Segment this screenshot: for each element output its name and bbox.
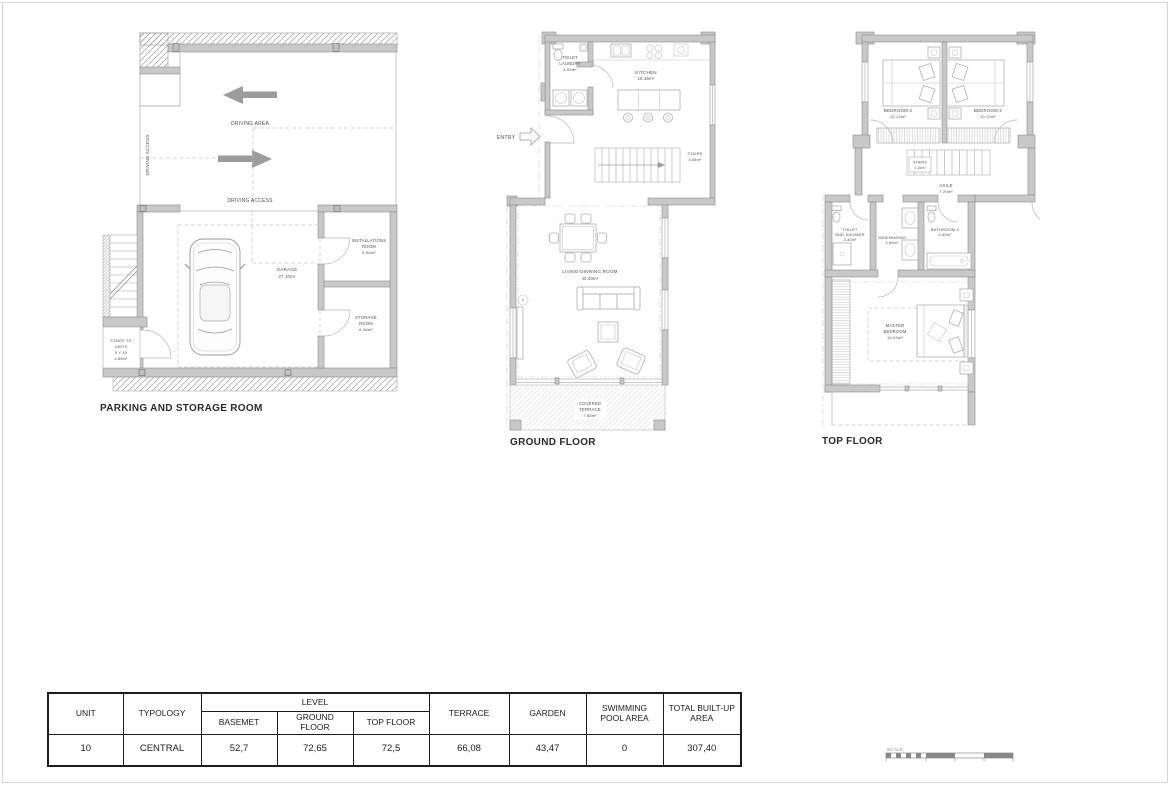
kitchen-island xyxy=(618,90,680,122)
covered-terrace: COVERED TERRACE 7.58m² xyxy=(510,385,665,430)
entry-label: ENTRY xyxy=(497,135,516,141)
stairs-units-area: 4.88m² xyxy=(114,357,128,361)
top-stairs-area: 1.10m² xyxy=(914,166,926,170)
th-unit: UNIT xyxy=(48,693,123,734)
living-room-area: 40.30m² xyxy=(582,276,599,281)
table-row: 10 CENTRAL 52,7 72,65 72,5 66,08 43,47 0… xyxy=(48,734,741,766)
cell-garden: 43,47 xyxy=(509,734,586,766)
entry-arrow-icon xyxy=(520,128,540,145)
cell-basement: 52,7 xyxy=(201,734,277,766)
bedroom3-name: BEDROOM 3 xyxy=(884,108,913,113)
living-window-left xyxy=(510,308,516,358)
cell-unit: 10 xyxy=(48,734,123,766)
storage-area: 6.08m² xyxy=(359,327,373,332)
storage-room-label: STORAGE ROOM 6.08m² xyxy=(355,315,377,332)
driving-access-bottom-label: DRIVING ACCESS xyxy=(227,198,273,204)
bedroom3-bed xyxy=(883,60,940,106)
sofa xyxy=(577,287,640,310)
toilet-laundry-room: TOILET LAUNDRY 3.05m² xyxy=(545,42,613,115)
th-basement: BASEMET xyxy=(201,712,277,735)
stairs-units-label-1: STAIRS TO xyxy=(110,339,131,343)
toilet-shower-room: TOILET AND SHOWER 3.30m² xyxy=(832,206,865,265)
cell-typology: CENTRAL xyxy=(123,734,201,766)
master-terrace-outline xyxy=(832,392,975,425)
th-level: LEVEL xyxy=(201,693,429,712)
installations-room-door xyxy=(324,238,350,264)
kitchen-area: 16.19m² xyxy=(638,76,655,81)
living-room-name: LIVING-DINNING ROOM xyxy=(562,269,617,274)
scale-label: SCALE xyxy=(887,747,903,752)
master-area: 19.03m² xyxy=(887,335,904,340)
installations-area: 5.96m² xyxy=(362,250,376,255)
console-table xyxy=(517,307,523,359)
th-swimming-pool: SWIMMING POOL AREA xyxy=(586,693,663,734)
cell-swimming-pool: 0 xyxy=(586,734,663,766)
toilet-shower-line2: AND SHOWER xyxy=(835,232,865,237)
top-stairs: STAIRS 1.10m² xyxy=(907,150,990,175)
master-bed xyxy=(917,305,968,357)
ground-stairs: STAIRS 3.84m² xyxy=(595,148,703,182)
th-typology: TYPOLOGY xyxy=(123,693,201,734)
master-window xyxy=(968,310,975,358)
kitchen-window xyxy=(710,85,715,125)
toilet-laundry-line2: LAUNDRY xyxy=(559,61,580,66)
master-line2: BEDROOM xyxy=(883,329,906,334)
installations-line1: INSTALLATIONS xyxy=(352,238,387,243)
kitchen-sink xyxy=(611,44,631,57)
terrace-line1: COVERED xyxy=(579,401,601,406)
ground-plan-title: GROUND FLOOR xyxy=(510,437,596,448)
th-terrace: TERRACE xyxy=(429,693,509,734)
installations-line2: ROOM xyxy=(362,244,376,249)
washbasins-area: 4.89m² xyxy=(885,241,899,245)
scale-segment-1 xyxy=(926,753,955,758)
storage-line2: ROOM xyxy=(359,321,373,326)
storage-room-door xyxy=(324,310,350,336)
ground-stairs-name: STAIRS xyxy=(687,151,702,156)
th-garden: GARDEN xyxy=(509,693,586,734)
ground-floor-plan: TOILET LAUNDRY 3.05m² xyxy=(485,28,720,448)
washer-dryer-fixtures xyxy=(553,90,587,106)
bedroom2-bed xyxy=(947,60,1004,106)
structural-walls-top xyxy=(140,33,397,205)
terrace-line2: TERRACE xyxy=(579,407,600,412)
living-window-right-2 xyxy=(662,290,668,330)
driving-area-label: DRIVING AREA xyxy=(231,121,269,127)
washbasins-name: WASHBASINS xyxy=(878,235,906,240)
top-floor-plan: BEDROOM 3 10.12m² BEDROOM 2 10.12m² STAI… xyxy=(820,28,1040,448)
kitchen: KITCHEN 16.19m² xyxy=(593,42,710,122)
top-plan-title: TOP FLOOR xyxy=(822,436,883,447)
living-window-right-1 xyxy=(662,218,668,258)
bathroom2-area: 4.80m² xyxy=(938,233,952,237)
landing-door xyxy=(143,330,171,358)
driving-access-left-label: DRIVING ACCESS xyxy=(145,134,150,175)
washbasins-room: WASHBASINS 4.89m² xyxy=(878,208,918,260)
unit-area-table: UNIT TYPOLOGY LEVEL TERRACE GARDEN SWIMM… xyxy=(47,692,742,767)
installations-room-label: INSTALLATIONS ROOM 5.96m² xyxy=(352,238,387,255)
entry: ENTRY xyxy=(497,116,574,145)
aisle-name: ASILE xyxy=(939,183,952,188)
garage-name: GARAGE xyxy=(277,267,298,272)
bedroom3-window xyxy=(862,62,868,102)
ground-stairs-area: 3.84m² xyxy=(688,158,702,162)
armchair-left xyxy=(567,350,598,379)
coffee-table xyxy=(598,322,618,342)
th-top-floor: TOP FLOOR xyxy=(353,712,429,735)
scale-bar: SCALE xyxy=(883,744,1018,766)
toilet-laundry-area: 3.05m² xyxy=(563,67,577,72)
bedroom2-area: 10.12m² xyxy=(980,114,997,119)
parking-plan-title: PARKING AND STORAGE ROOM xyxy=(100,403,263,414)
master-glass-doors xyxy=(880,386,968,391)
bathroom2-room: BATHROOM 2 4.80m² xyxy=(927,206,971,269)
master-line1: MASTER xyxy=(886,323,905,328)
corner-basin-fixture xyxy=(580,44,587,51)
arrow-right-icon xyxy=(218,150,272,168)
toilet-shower-area: 3.30m² xyxy=(843,238,857,242)
stairs-units-label-2: UNITS xyxy=(115,345,128,349)
floor-lamp xyxy=(518,295,528,305)
garage-label: GARAGE 27.10m² xyxy=(277,267,298,279)
arrow-left-icon xyxy=(223,86,277,104)
garage-car xyxy=(185,239,245,355)
bedroom3-area: 10.12m² xyxy=(890,114,907,119)
stove-burners xyxy=(647,45,662,59)
storage-line1: STORAGE xyxy=(355,315,377,320)
cell-ground-floor: 72,65 xyxy=(277,734,353,766)
terrace-area: 7.58m² xyxy=(583,413,597,418)
bedroom-block-walls xyxy=(853,32,1035,202)
kitchen-name: KITCHEN xyxy=(635,70,657,75)
th-total-built-up: TOTAL BUILT-UP AREA xyxy=(663,693,741,734)
prep-sink xyxy=(674,44,688,56)
armchair-right xyxy=(616,347,646,375)
dining-set xyxy=(550,214,607,262)
garage-area: 27.10m² xyxy=(279,274,296,279)
scale-segment-2 xyxy=(984,753,1013,758)
garage-walls xyxy=(103,205,397,391)
drawing-sheet: DRIVING AREA DRIVING ACCESS DRIVING ACCE… xyxy=(0,0,1170,785)
parking-floor-plan: DRIVING AREA DRIVING ACCESS DRIVING ACCE… xyxy=(95,28,430,418)
stairs-units-label-3: 9 Y 10 xyxy=(115,351,127,355)
terrace-glass-doors xyxy=(516,378,662,384)
aisle-area: 7.20m² xyxy=(939,189,953,194)
th-ground-floor: GROUND FLOOR xyxy=(277,712,353,735)
bathroom2-name: BATHROOM 2 xyxy=(931,227,960,232)
toilet-laundry-line1: TOILET xyxy=(562,55,578,60)
top-stairs-name: STAIRS xyxy=(913,161,927,165)
scale-ticks xyxy=(886,758,1013,762)
bedroom2-window xyxy=(1027,62,1033,102)
bedroom2-name: BEDROOM 2 xyxy=(974,108,1003,113)
cell-top-floor: 72,5 xyxy=(353,734,429,766)
cell-terrace: 66,08 xyxy=(429,734,509,766)
cell-total-built-up: 307,40 xyxy=(663,734,741,766)
